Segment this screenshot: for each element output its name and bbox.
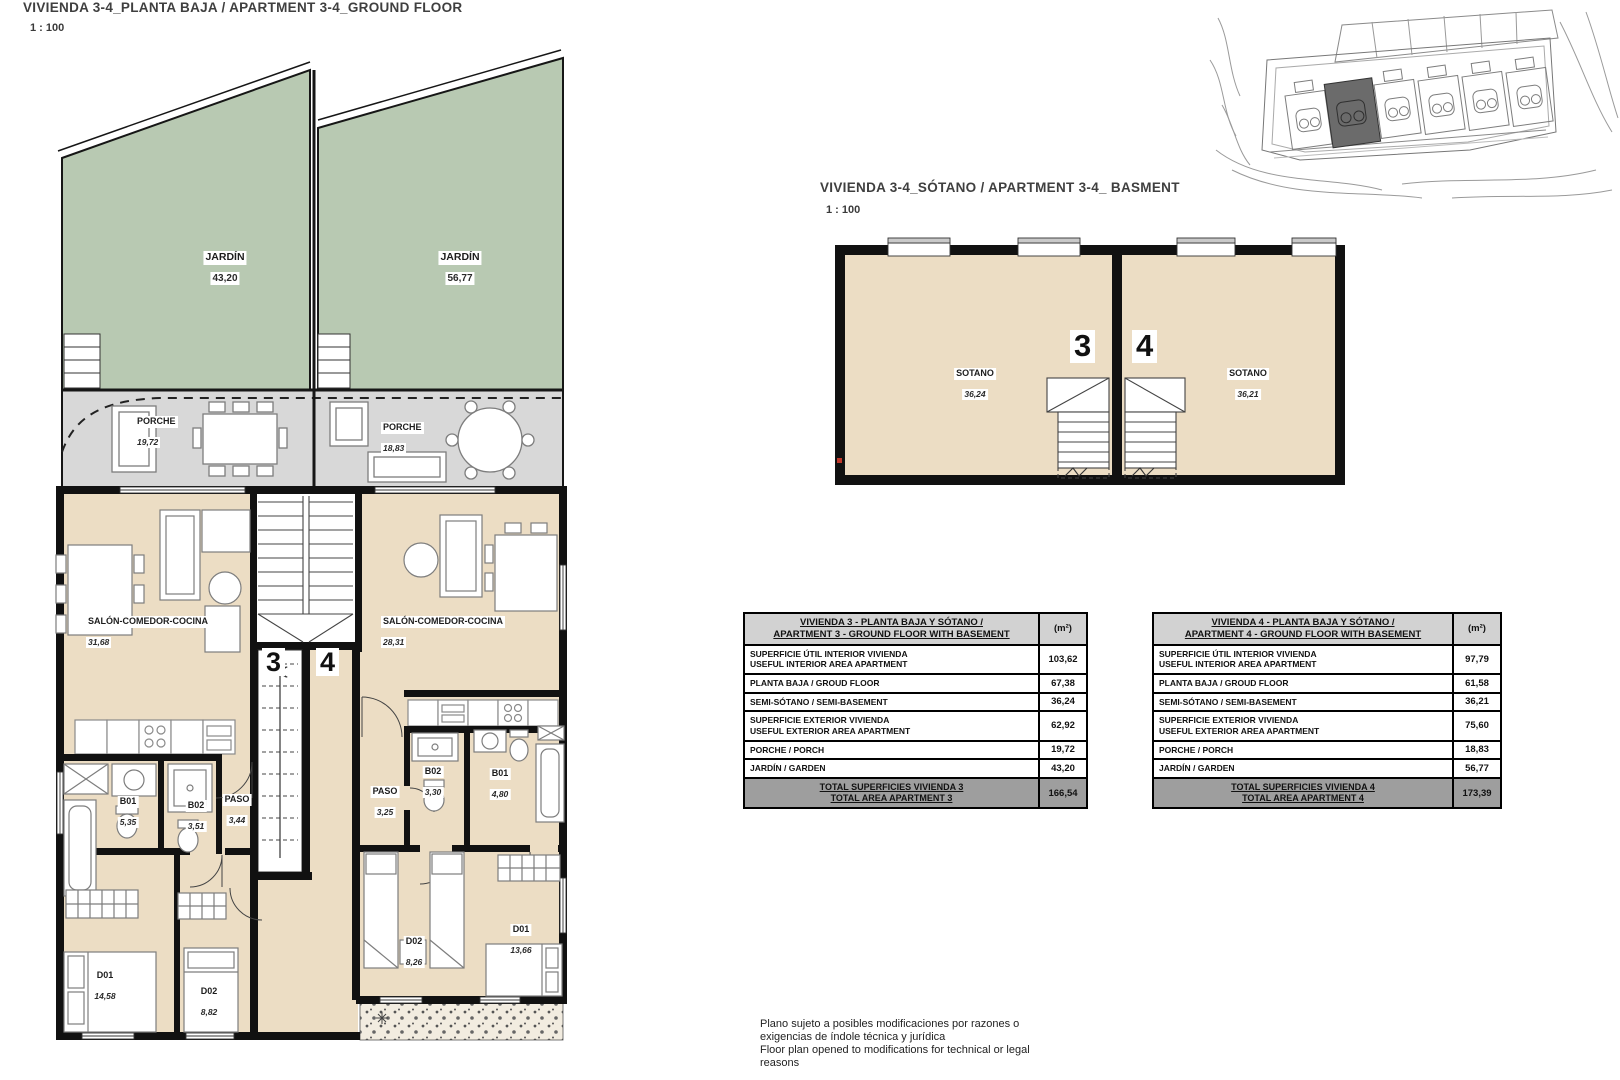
site-plan-map (1210, 10, 1618, 198)
room-label-porche-right: PORCHE 18,83 (381, 416, 424, 458)
room-label-b02-left: B02 3,51 (186, 794, 207, 836)
table-row-value: 67,38 (1040, 675, 1086, 692)
table-row-value: 36,21 (1454, 694, 1500, 711)
table-row-value: 36,24 (1040, 694, 1086, 711)
table-row: SUPERFICIE EXTERIOR VIVIENDA USEFUL EXTE… (745, 712, 1086, 741)
table-total-label: TOTAL SUPERFICIES VIVIENDA 4 TOTAL AREA … (1154, 779, 1454, 808)
basement-title: VIVIENDA 3-4_SÓTANO / APARTMENT 3-4_ BAS… (820, 180, 1180, 195)
table-title: VIVIENDA 3 - PLANTA BAJA Y SÓTANO / APAR… (745, 614, 1040, 644)
table-row-value: 56,77 (1454, 760, 1500, 777)
table-body: SUPERFICIE ÚTIL INTERIOR VIVIENDA USEFUL… (745, 646, 1086, 779)
table-row-label: SEMI-SÓTANO / SEMI-BASEMENT (1154, 694, 1454, 711)
table-row-value: 62,92 (1040, 712, 1086, 739)
table-body: SUPERFICIE ÚTIL INTERIOR VIVIENDA USEFUL… (1154, 646, 1500, 779)
table-unit-header: (m²) (1040, 614, 1086, 644)
area-table-apartment-4: VIVIENDA 4 - PLANTA BAJA Y SÓTANO / APAR… (1152, 612, 1502, 809)
table-row: JARDÍN / GARDEN56,77 (1154, 760, 1500, 779)
table-row-value: 103,62 (1040, 646, 1086, 673)
floor-plan-sheet: VIVIENDA 3-4_PLANTA BAJA / APARTMENT 3-4… (0, 0, 1620, 1080)
table-row-value: 75,60 (1454, 712, 1500, 739)
table-row-label: SUPERFICIE ÚTIL INTERIOR VIVIENDA USEFUL… (1154, 646, 1454, 673)
table-row: SUPERFICIE EXTERIOR VIVIENDA USEFUL EXTE… (1154, 712, 1500, 741)
room-label-paso-right: PASO 3,25 (371, 780, 400, 822)
disclaimer-text: Plano sujeto a posibles modificaciones p… (760, 1018, 1030, 1070)
table-row-label: PORCHE / PORCH (745, 742, 1040, 759)
room-label-salon-right: SALÓN-COMEDOR-COCINA 28,31 (381, 610, 505, 652)
ground-floor-drawing (56, 50, 567, 1040)
table-row-value: 61,58 (1454, 675, 1500, 692)
table-row-value: 43,20 (1040, 760, 1086, 777)
table-row-label: PLANTA BAJA / GROUD FLOOR (1154, 675, 1454, 692)
ground-floor-scale: 1 : 100 (30, 22, 64, 34)
plan-drawing (0, 0, 1620, 1080)
room-label-d02-left: D02 8,82 (199, 980, 220, 1022)
room-label-d01-right: D01 13,66 (508, 918, 533, 960)
table-row: PLANTA BAJA / GROUD FLOOR61,58 (1154, 675, 1500, 694)
table-row: PORCHE / PORCH19,72 (745, 742, 1086, 761)
table-unit-header: (m²) (1454, 614, 1500, 644)
room-label-b01-right: B01 4,80 (490, 762, 511, 804)
table-row: SUPERFICIE ÚTIL INTERIOR VIVIENDA USEFUL… (745, 646, 1086, 675)
garden-areas (58, 50, 563, 390)
room-label-d02-right: D02 8,26 (404, 930, 425, 972)
ground-floor-title: VIVIENDA 3-4_PLANTA BAJA / APARTMENT 3-4… (23, 0, 462, 15)
room-label-sotano-right: SOTANO 36,21 (1227, 362, 1269, 404)
table-row-value: 18,83 (1454, 742, 1500, 759)
basement-scale: 1 : 100 (826, 204, 860, 216)
room-label-b02-right: B02 3,30 (423, 760, 444, 802)
table-row: SUPERFICIE ÚTIL INTERIOR VIVIENDA USEFUL… (1154, 646, 1500, 675)
table-row: JARDÍN / GARDEN43,20 (745, 760, 1086, 779)
exterior-gravel (360, 1002, 563, 1040)
table-title: VIVIENDA 4 - PLANTA BAJA Y SÓTANO / APAR… (1154, 614, 1454, 644)
table-row-label: SEMI-SÓTANO / SEMI-BASEMENT (745, 694, 1040, 711)
unit-number-3-basement: 3 (1070, 330, 1095, 363)
table-row-label: JARDÍN / GARDEN (1154, 760, 1454, 777)
table-row: PLANTA BAJA / GROUD FLOOR67,38 (745, 675, 1086, 694)
room-label-b01-left: B01 5,35 (118, 790, 139, 832)
highlighted-unit (1324, 78, 1380, 148)
table-row-label: JARDÍN / GARDEN (745, 760, 1040, 777)
room-label-paso-left: PASO 3,44 (223, 788, 252, 830)
table-total-value: 166,54 (1040, 779, 1086, 808)
room-label-d01-left: D01 14,58 (92, 964, 117, 1006)
table-row: PORCHE / PORCH18,83 (1154, 742, 1500, 761)
room-label-sotano-left: SOTANO 36,24 (954, 362, 996, 404)
room-label-jardin-left: JARDÍN 43,20 (203, 246, 246, 288)
table-row: SEMI-SÓTANO / SEMI-BASEMENT36,24 (745, 694, 1086, 713)
table-row-value: 97,79 (1454, 646, 1500, 673)
table-total-label: TOTAL SUPERFICIES VIVIENDA 3 TOTAL AREA … (745, 779, 1040, 808)
table-total-value: 173,39 (1454, 779, 1500, 808)
table-row-value: 19,72 (1040, 742, 1086, 759)
room-label-porche-left: PORCHE 19,72 (135, 410, 178, 452)
table-row-label: PLANTA BAJA / GROUD FLOOR (745, 675, 1040, 692)
table-row-label: SUPERFICIE EXTERIOR VIVIENDA USEFUL EXTE… (745, 712, 1040, 739)
area-table-apartment-3: VIVIENDA 3 - PLANTA BAJA Y SÓTANO / APAR… (743, 612, 1088, 809)
unit-number-4-ground: 4 (316, 648, 339, 676)
room-label-salon-left: SALÓN-COMEDOR-COCINA 31,68 (86, 610, 210, 652)
table-row-label: SUPERFICIE ÚTIL INTERIOR VIVIENDA USEFUL… (745, 646, 1040, 673)
unit-number-4-basement: 4 (1132, 330, 1157, 363)
unit-number-3-ground: 3 (262, 648, 285, 676)
room-label-jardin-right: JARDÍN 56,77 (438, 246, 481, 288)
table-row: SEMI-SÓTANO / SEMI-BASEMENT36,21 (1154, 694, 1500, 713)
table-row-label: PORCHE / PORCH (1154, 742, 1454, 759)
table-row-label: SUPERFICIE EXTERIOR VIVIENDA USEFUL EXTE… (1154, 712, 1454, 739)
